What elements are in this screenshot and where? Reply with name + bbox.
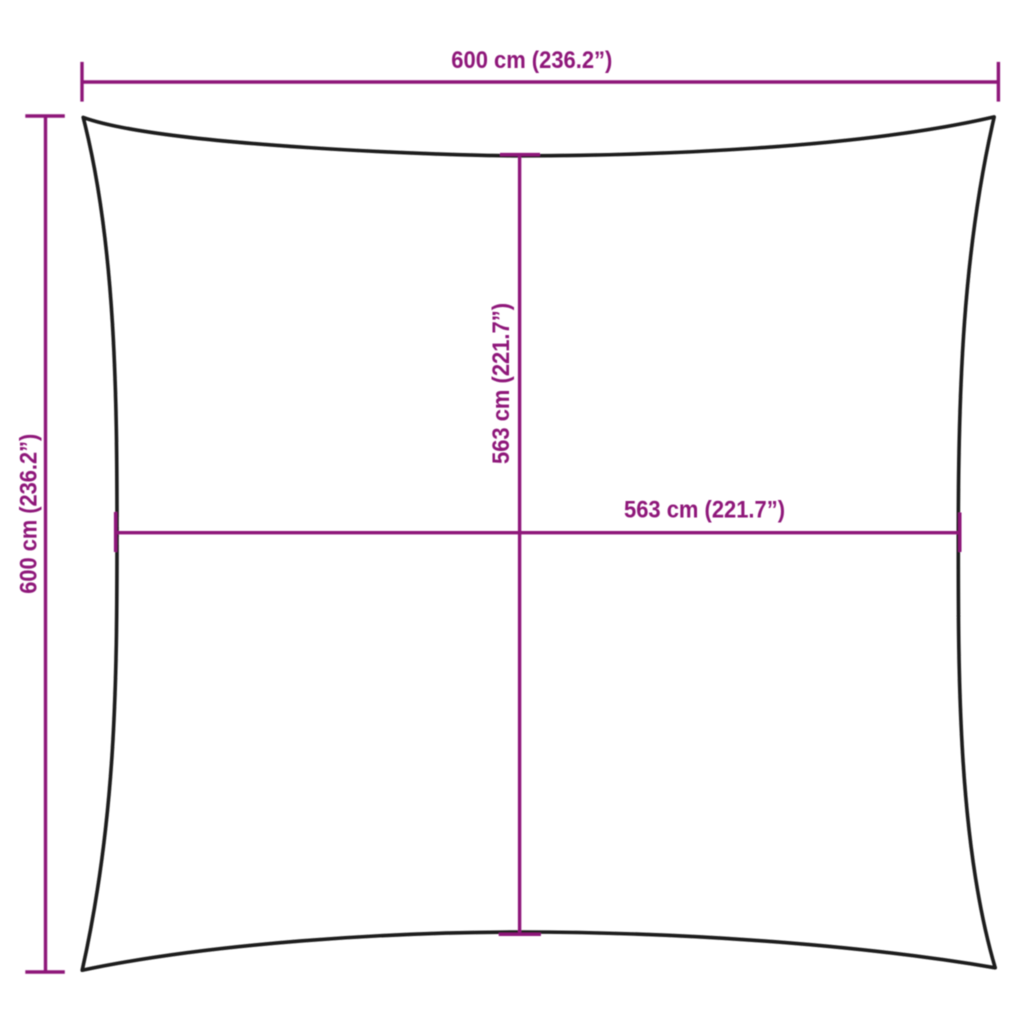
svg-text:600 cm (236.2”): 600 cm (236.2”) <box>16 434 43 594</box>
svg-text:563 cm (221.7”): 563 cm (221.7”) <box>488 303 515 464</box>
svg-text:600 cm (236.2”): 600 cm (236.2”) <box>451 47 612 74</box>
svg-text:563 cm (221.7”): 563 cm (221.7”) <box>624 497 785 524</box>
